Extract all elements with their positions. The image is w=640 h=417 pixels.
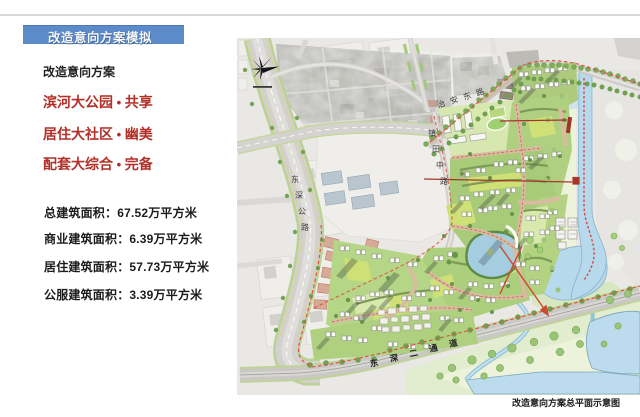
svg-text:路: 路 <box>301 222 309 232</box>
svg-text:田: 田 <box>432 145 440 154</box>
svg-text:东: 东 <box>291 174 299 184</box>
svg-text:路: 路 <box>440 176 448 186</box>
svg-text:深: 深 <box>295 191 303 200</box>
svg-text:镇: 镇 <box>428 128 436 138</box>
svg-text:中: 中 <box>436 160 444 170</box>
svg-text:公: 公 <box>298 207 306 216</box>
